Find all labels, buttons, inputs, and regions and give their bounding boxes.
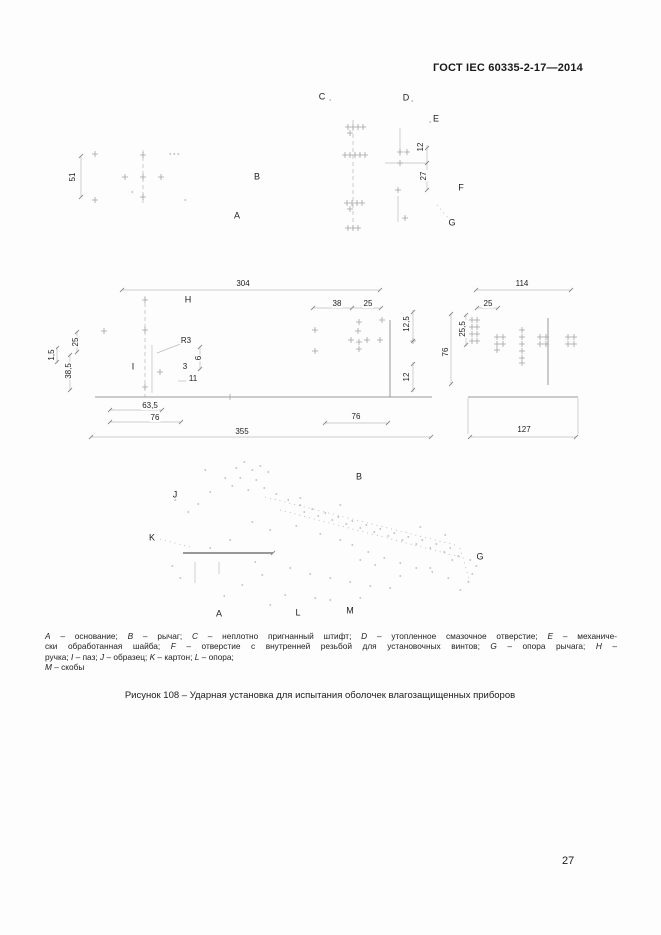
dimension-label: 27 (420, 171, 428, 182)
dimension-label: 127 (516, 426, 531, 434)
dimension-label: 355 (234, 428, 249, 436)
legend-text: – образец; (104, 652, 149, 662)
figure-legend: A – основание; B – рычаг; C – неплотно п… (45, 631, 617, 673)
dimension-label: 3 (182, 363, 188, 371)
part-label-a: A (216, 610, 222, 619)
legend-line: M – скобы (45, 662, 617, 672)
dimension-label: 25 (72, 337, 80, 348)
part-label-b: B (356, 473, 362, 482)
part-label-g: G (448, 219, 455, 228)
legend-text: – (602, 641, 617, 651)
dimension-label: 38 (332, 300, 343, 308)
part-label-h: H (185, 296, 192, 305)
part-label-j: J (173, 491, 178, 500)
dimension-label: 76 (351, 413, 362, 421)
legend-text: ски обработанная шайба; (45, 641, 171, 651)
legend-text: – утопленное смазочное отверстие; (367, 631, 547, 641)
legend-line: A – основание; B – рычаг; C – неплотно п… (45, 631, 617, 641)
dimension-label: 1,5 (48, 348, 56, 361)
dimension-label: 25 (483, 300, 494, 308)
part-label-b: B (254, 173, 260, 182)
legend-line: ручка; I – паз; J – образец; K – картон;… (45, 652, 617, 662)
dimension-label: 25,5 (459, 320, 467, 338)
figure-caption: Рисунок 108 – Ударная установка для испы… (0, 690, 640, 701)
part-label-c: C (319, 93, 326, 102)
dimension-label: 12 (417, 142, 425, 153)
document-page: ГОСТ IEC 60335-2-17—2014 CDEFGBAHIJBKGAL… (0, 0, 661, 935)
dimension-label: 12,5 (403, 315, 411, 333)
part-label-f: F (458, 184, 464, 193)
page-number: 27 (562, 855, 574, 867)
legend-text: – механиче- (553, 631, 617, 641)
dimension-label: 51 (69, 172, 77, 183)
dimension-label: 76 (150, 414, 161, 422)
figure-labels-layer: CDEFGBAHIJBKGALM511227304R3251,538,53611… (0, 0, 661, 935)
legend-text: – опора; (199, 652, 233, 662)
legend-line: ски обработанная шайба; F – отверстие с … (45, 641, 617, 651)
dimension-label: R3 (180, 337, 192, 345)
part-label-i: I (132, 363, 135, 372)
dimension-label: 304 (235, 280, 250, 288)
legend-part-letter: M (45, 662, 52, 672)
part-label-k: K (149, 534, 155, 543)
part-label-d: D (403, 94, 410, 103)
dimension-label: 38,5 (65, 362, 73, 380)
part-label-a: A (234, 212, 240, 221)
legend-text: – отверстие с внутренней резьбой для уст… (176, 641, 491, 651)
dimension-label: 76 (442, 347, 450, 358)
legend-text: – неплотно пригнанный штифт; (198, 631, 361, 641)
legend-text: – основание; (51, 631, 128, 641)
dimension-label: 63,5 (141, 402, 159, 410)
legend-text: – паз; (73, 652, 100, 662)
legend-text: ручка; (45, 652, 71, 662)
part-label-g: G (476, 553, 483, 562)
part-label-e: E (433, 115, 439, 124)
legend-text: – опора рычага; (497, 641, 596, 651)
legend-text: – картон; (155, 652, 195, 662)
dimension-label: 11 (188, 375, 198, 383)
dimension-label: 114 (515, 280, 530, 288)
dimension-label: 12 (403, 372, 411, 383)
part-label-m: M (346, 607, 354, 616)
dimension-label: 25 (363, 300, 374, 308)
part-label-l: L (295, 609, 300, 618)
legend-text: – рычаг; (133, 631, 192, 641)
legend-text: – скобы (52, 662, 84, 672)
dimension-label: 6 (195, 355, 203, 361)
